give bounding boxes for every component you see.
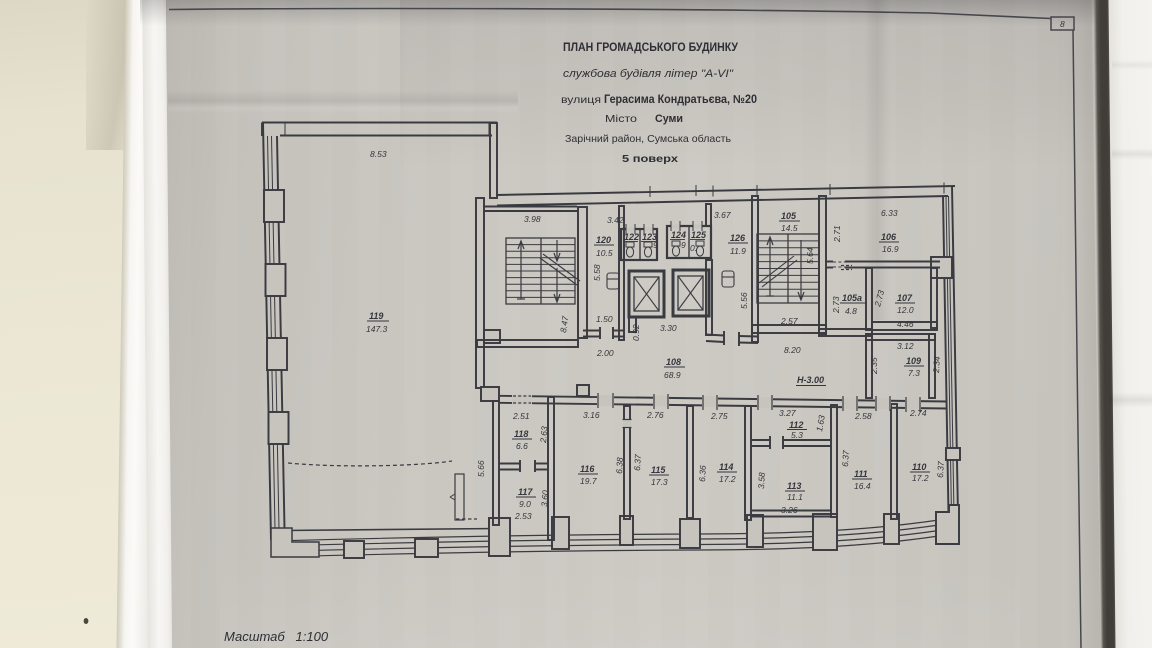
svg-text:3.58: 3.58 (756, 472, 767, 489)
svg-text:105: 105 (781, 211, 797, 221)
svg-text:Зарічний район, Сумська област: Зарічний район, Сумська область (565, 133, 732, 145)
svg-text:113: 113 (787, 481, 801, 491)
svg-text:5.3: 5.3 (791, 430, 803, 440)
svg-text:119: 119 (369, 311, 383, 321)
svg-text:2.58: 2.58 (854, 411, 872, 421)
svg-text:120: 120 (596, 235, 611, 245)
svg-text:1.63: 1.63 (814, 414, 827, 432)
svg-text:2.75: 2.75 (710, 411, 728, 421)
svg-text:3.26: 3.26 (781, 505, 798, 515)
svg-text:17.2: 17.2 (719, 474, 736, 484)
svg-text:12.0: 12.0 (897, 305, 914, 315)
svg-text:5.64: 5.64 (805, 247, 815, 264)
svg-text:3.16: 3.16 (583, 410, 600, 420)
svg-text:116: 116 (580, 464, 595, 474)
svg-text:6.37: 6.37 (632, 454, 643, 471)
svg-text:124: 124 (671, 230, 686, 240)
svg-text:122: 122 (624, 232, 639, 242)
svg-text:6.6: 6.6 (516, 441, 528, 451)
svg-text:1.50: 1.50 (596, 314, 613, 324)
svg-text:6.36: 6.36 (697, 465, 708, 482)
svg-text:11.1: 11.1 (787, 492, 803, 502)
svg-text:123: 123 (642, 232, 657, 242)
svg-text:Місто: Місто (605, 113, 637, 125)
svg-text:Суми: Суми (655, 113, 683, 125)
svg-text:17.2: 17.2 (912, 473, 929, 483)
svg-text:14.5: 14.5 (781, 223, 798, 233)
svg-text:107: 107 (897, 293, 913, 303)
svg-text:117: 117 (518, 487, 533, 497)
svg-text:4.46: 4.46 (897, 319, 914, 329)
svg-text:110: 110 (912, 462, 926, 472)
svg-text:2.53: 2.53 (514, 511, 532, 521)
svg-text:2.51: 2.51 (512, 411, 530, 421)
svg-text:2.71: 2.71 (832, 225, 842, 243)
svg-text:2.76: 2.76 (646, 410, 664, 420)
svg-text:6.37: 6.37 (935, 461, 946, 478)
svg-text:16.4: 16.4 (854, 481, 871, 491)
svg-text:5.58: 5.58 (592, 264, 602, 281)
svg-text:2.00: 2.00 (596, 348, 614, 358)
svg-text:2.73: 2.73 (831, 296, 841, 314)
svg-text:9.0: 9.0 (519, 499, 531, 509)
svg-text:вулиця: вулиця (561, 94, 601, 106)
svg-text:9: 9 (681, 240, 686, 250)
svg-text:Масштаб 1:100: Масштаб 1:100 (224, 629, 329, 644)
svg-text:105а: 105а (842, 293, 862, 303)
svg-text:108: 108 (666, 357, 681, 367)
svg-text:3.98: 3.98 (524, 214, 541, 224)
svg-text:5 поверх: 5 поверх (622, 153, 678, 165)
svg-text:147.3: 147.3 (366, 324, 388, 334)
svg-text:3.42: 3.42 (607, 215, 624, 225)
svg-text:2.57: 2.57 (780, 316, 798, 326)
svg-text:Н-3.00: Н-3.00 (797, 375, 824, 385)
svg-text:6.37: 6.37 (840, 450, 851, 467)
svg-text:2.35: 2.35 (869, 357, 879, 375)
svg-text:3.60: 3.60 (539, 490, 550, 508)
svg-text:106: 106 (881, 232, 897, 242)
svg-text:5.56: 5.56 (739, 292, 749, 309)
svg-text:5.66: 5.66 (476, 460, 486, 477)
svg-text:126: 126 (730, 233, 746, 243)
svg-text:8.53: 8.53 (370, 149, 387, 159)
svg-text:17.3: 17.3 (651, 477, 668, 487)
svg-text:11.9: 11.9 (730, 246, 746, 256)
svg-text:125: 125 (691, 230, 707, 240)
svg-text:6.38: 6.38 (614, 457, 625, 474)
svg-text:2.74: 2.74 (909, 408, 927, 418)
svg-text:3.30: 3.30 (660, 323, 677, 333)
svg-text:10.5: 10.5 (596, 248, 613, 258)
svg-text:3.12: 3.12 (897, 341, 914, 351)
svg-text:19.7: 19.7 (580, 476, 597, 486)
svg-text:118: 118 (514, 429, 528, 439)
svg-text:7.3: 7.3 (908, 368, 920, 378)
svg-text:службова будівля літер "А-VI": службова будівля літер "А-VI" (563, 68, 734, 80)
svg-text:2.73: 2.73 (872, 289, 886, 309)
svg-text:ПЛАН ГРОМАДСЬКОГО БУДИНКУ: ПЛАН ГРОМАДСЬКОГО БУДИНКУ (563, 42, 739, 54)
svg-text:115: 115 (651, 465, 666, 475)
svg-text:3.67: 3.67 (714, 210, 731, 220)
svg-text:6.33: 6.33 (881, 208, 898, 218)
svg-text:111: 111 (854, 469, 868, 479)
svg-text:2.63: 2.63 (538, 426, 550, 445)
svg-text:2.34: 2.34 (931, 356, 942, 374)
svg-text:Герасима Кондратьєва, №20: Герасима Кондратьєва, №20 (604, 94, 757, 106)
svg-text:68.9: 68.9 (664, 370, 681, 380)
svg-text:8.20: 8.20 (784, 345, 801, 355)
svg-text:16.9: 16.9 (882, 244, 899, 254)
svg-text:8.47: 8.47 (558, 315, 570, 333)
svg-text:109: 109 (906, 356, 921, 366)
svg-text:114: 114 (719, 462, 733, 472)
svg-text:8: 8 (1060, 19, 1065, 29)
svg-text:4.8: 4.8 (845, 306, 857, 316)
svg-text:0.92: 0.92 (631, 324, 641, 341)
svg-text:3.27: 3.27 (779, 408, 796, 418)
svg-text:112: 112 (789, 420, 803, 430)
